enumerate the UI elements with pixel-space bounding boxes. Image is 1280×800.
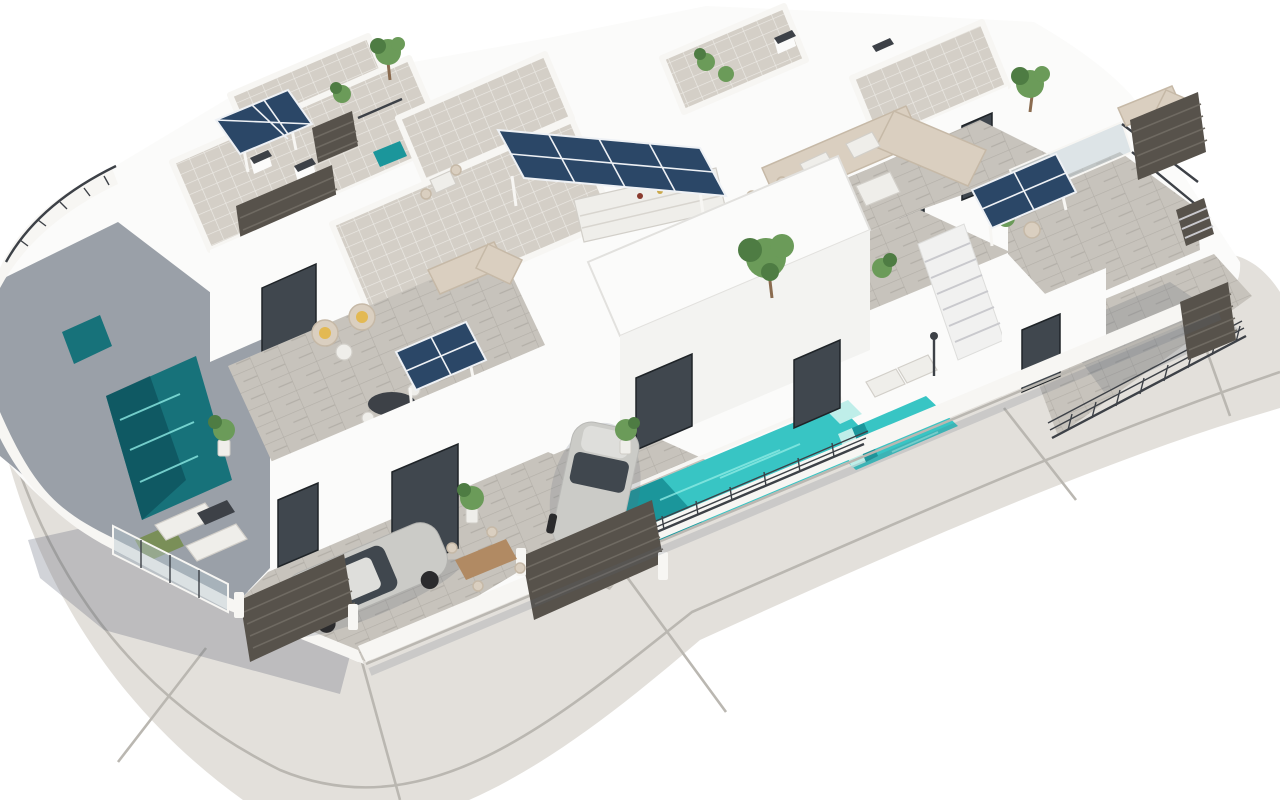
render-canvas: [0, 0, 1280, 800]
chair-terrace: [1024, 222, 1040, 238]
villa-development-render: [0, 0, 1280, 800]
